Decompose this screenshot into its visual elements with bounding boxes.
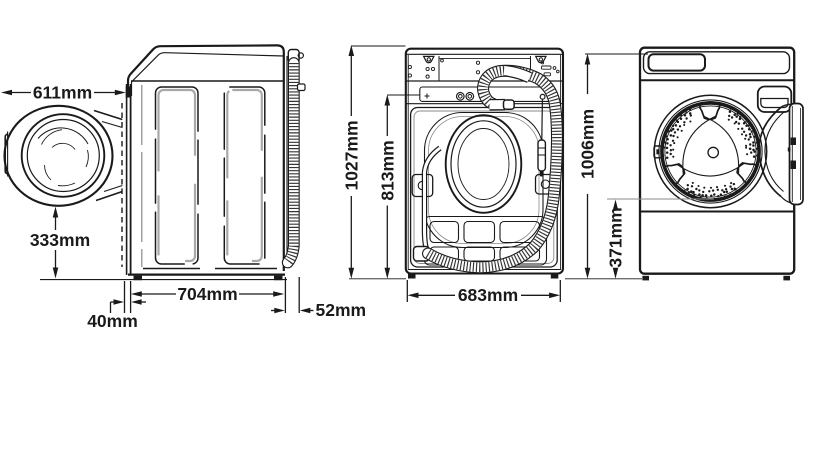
svg-text:371mm: 371mm (606, 207, 626, 267)
svg-text:704mm: 704mm (177, 284, 237, 304)
svg-text:813mm: 813mm (378, 140, 398, 200)
svg-text:40mm: 40mm (87, 311, 138, 331)
svg-text:1006mm: 1006mm (578, 109, 598, 179)
svg-text:683mm: 683mm (458, 285, 518, 305)
svg-text:52mm: 52mm (316, 300, 367, 320)
svg-text:333mm: 333mm (30, 230, 90, 250)
svg-text:1027mm: 1027mm (342, 120, 362, 190)
svg-text:611mm: 611mm (33, 82, 92, 102)
